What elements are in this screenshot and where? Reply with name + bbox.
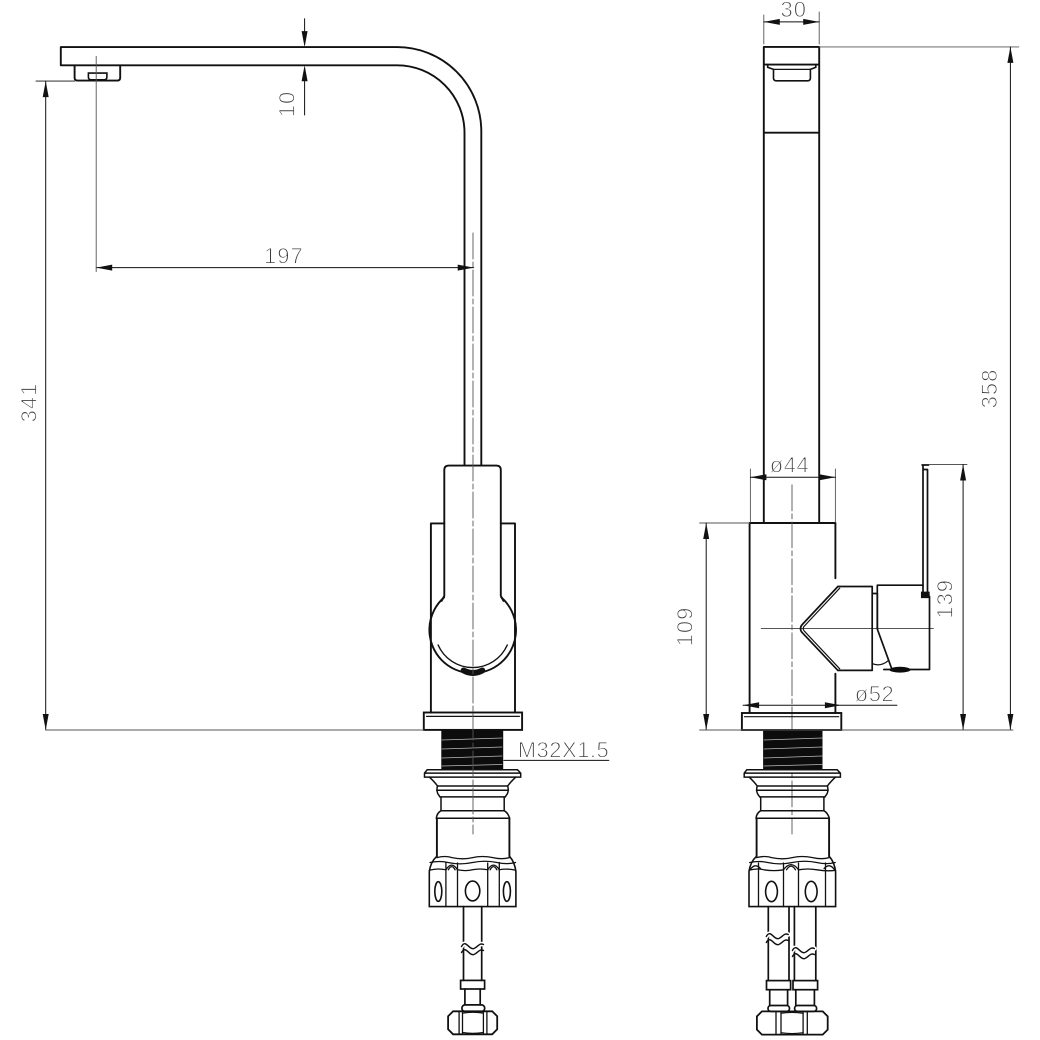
svg-text:109: 109 [672,607,697,647]
svg-text:10: 10 [275,91,300,117]
svg-text:341: 341 [17,383,42,423]
svg-text:ø44: ø44 [770,453,809,478]
svg-text:358: 358 [977,369,1002,409]
svg-text:M32X1.5: M32X1.5 [518,738,610,763]
svg-text:30: 30 [781,0,807,22]
svg-text:139: 139 [932,579,957,619]
svg-text:197: 197 [264,244,304,269]
svg-text:ø52: ø52 [855,682,894,707]
